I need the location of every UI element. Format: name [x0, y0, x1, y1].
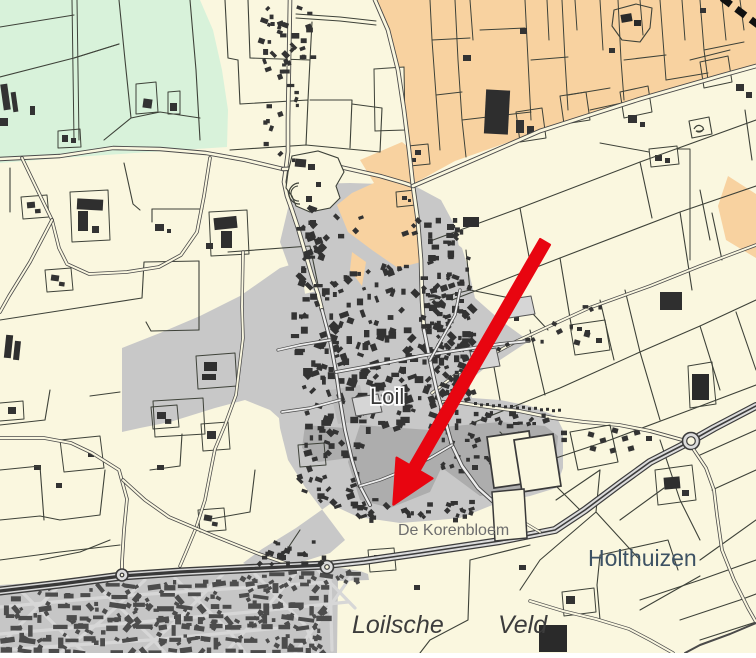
svg-text:De Korenbloem: De Korenbloem: [398, 522, 509, 539]
svg-text:Loil: Loil: [370, 384, 404, 409]
svg-text:Loilsche: Loilsche: [352, 611, 444, 639]
svg-text:Veld: Veld: [498, 611, 548, 639]
svg-text:Holthuizen: Holthuizen: [588, 545, 697, 571]
